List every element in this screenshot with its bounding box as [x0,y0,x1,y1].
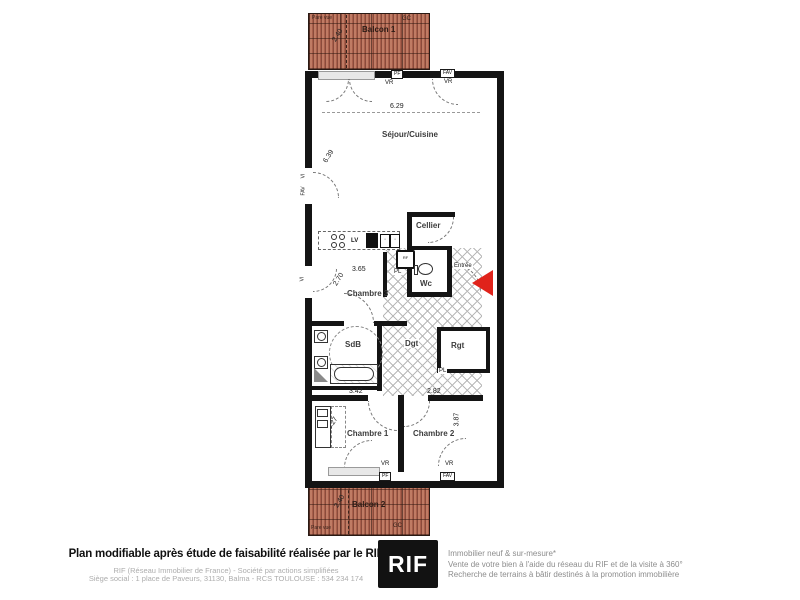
floor-plan-canvas: Pare vue Balcon 1 GC 2.40 PF VR FAV VR V… [0,0,800,600]
rif-logo-text: RIF [388,551,428,578]
sink-icon [339,242,345,248]
shower-triangle-icon [314,368,328,382]
fridge-tag-rf: RF [403,255,408,260]
window-tag-vr-bottom-left: VR [381,461,389,467]
balcony-1-dimension-line [346,15,347,68]
wall [447,246,452,297]
dim-chambre2-width: 2.82 [427,388,441,395]
closet-tag-pl-2: PL [438,368,447,374]
footer-service-line-1: Immobilier neuf & sur-mesure* [448,549,708,560]
dim-chambre2-height: 3.87 [453,413,460,427]
window-tag-vi-1: VI [300,174,306,179]
footer-service-line-2: Vente de votre bien à l'aide du réseau d… [448,560,708,571]
footer-services: Immobilier neuf & sur-mesure* Vente de v… [448,549,708,581]
sink-icon [331,234,337,240]
room-label-rgt: Rgt [451,341,464,350]
toilet-icon [418,263,433,275]
window-tag-fav-bottom: FAV [440,472,455,481]
window-tag-pf-bottom: PF [379,472,391,481]
wall [312,386,382,390]
footer-service-line-3: Recherche de terrains à bâtir destinés à… [448,570,708,581]
washbasin-icon [317,358,326,367]
room-label-wc: Wc [420,279,432,288]
chambre1-balcony-door-sill [328,467,380,476]
washbasin-icon [317,332,326,341]
hob-icon: · [390,234,400,248]
bathtub-icon [334,367,374,381]
balcony-1-label: Balcon 1 [362,25,395,34]
room-label-cellier: Cellier [416,221,440,230]
rgt-room [437,327,490,373]
wall [312,321,344,326]
closet-tag-pl-1: PL [393,269,402,275]
balcony-2-gc-label: GC [393,523,402,529]
room-label-entree: Entrée [453,263,473,269]
bed-pillow-icon [317,420,328,428]
entrance-arrow-icon [472,270,493,296]
room-label-dgt: Dgt [404,339,419,348]
room-label-sejour-cuisine: Séjour/Cuisine [355,130,465,139]
window-tag-fav-left: FAV [301,186,307,195]
dim-sejour-width: 6.29 [390,103,404,110]
sink-icon [339,234,345,240]
window-tag-vr-top-right: VR [444,79,452,85]
balcony-1 [308,13,430,70]
wall [407,292,452,297]
hob-icon: · [380,234,390,248]
window-tag-vi-2: VI [299,277,305,282]
room-label-sdb: SdB [345,340,361,349]
stove-icon [366,233,378,248]
sink-icon [331,242,337,248]
balcony-2-label: Balcon 2 [352,500,385,509]
dim-chambre1-width: 3.42 [349,388,363,395]
wall [312,395,368,401]
dishwasher-tag-lv: LV [351,238,358,244]
window-tag-fav-top: FAV [440,69,455,78]
room-label-chambre2: Chambre 2 [413,429,454,438]
balcony-2-dimension-line [348,480,349,534]
dimension-line [322,112,480,113]
left-window-2-gap [305,266,312,298]
balcony-2-pare-vue-label: Pare vue [311,525,331,531]
balcony-1-gc-label: GC [402,16,411,22]
wall [428,395,483,401]
window-tag-vr-bottom-right: VR [445,461,453,467]
room-label-chambre3: Chambre 3 [347,289,388,298]
balcony-1-pare-vue-label: Pare vue [312,15,332,21]
fridge-icon: RF [396,250,415,269]
bed-pillow-icon [317,409,328,417]
dim-chambre3-width: 3.65 [352,266,366,273]
window-tag-vr-top-left: VR [385,80,393,86]
rif-logo: RIF [378,540,438,588]
window-tag-pf-top: PF [391,70,403,79]
room-label-chambre1: Chambre 1 [347,429,388,438]
